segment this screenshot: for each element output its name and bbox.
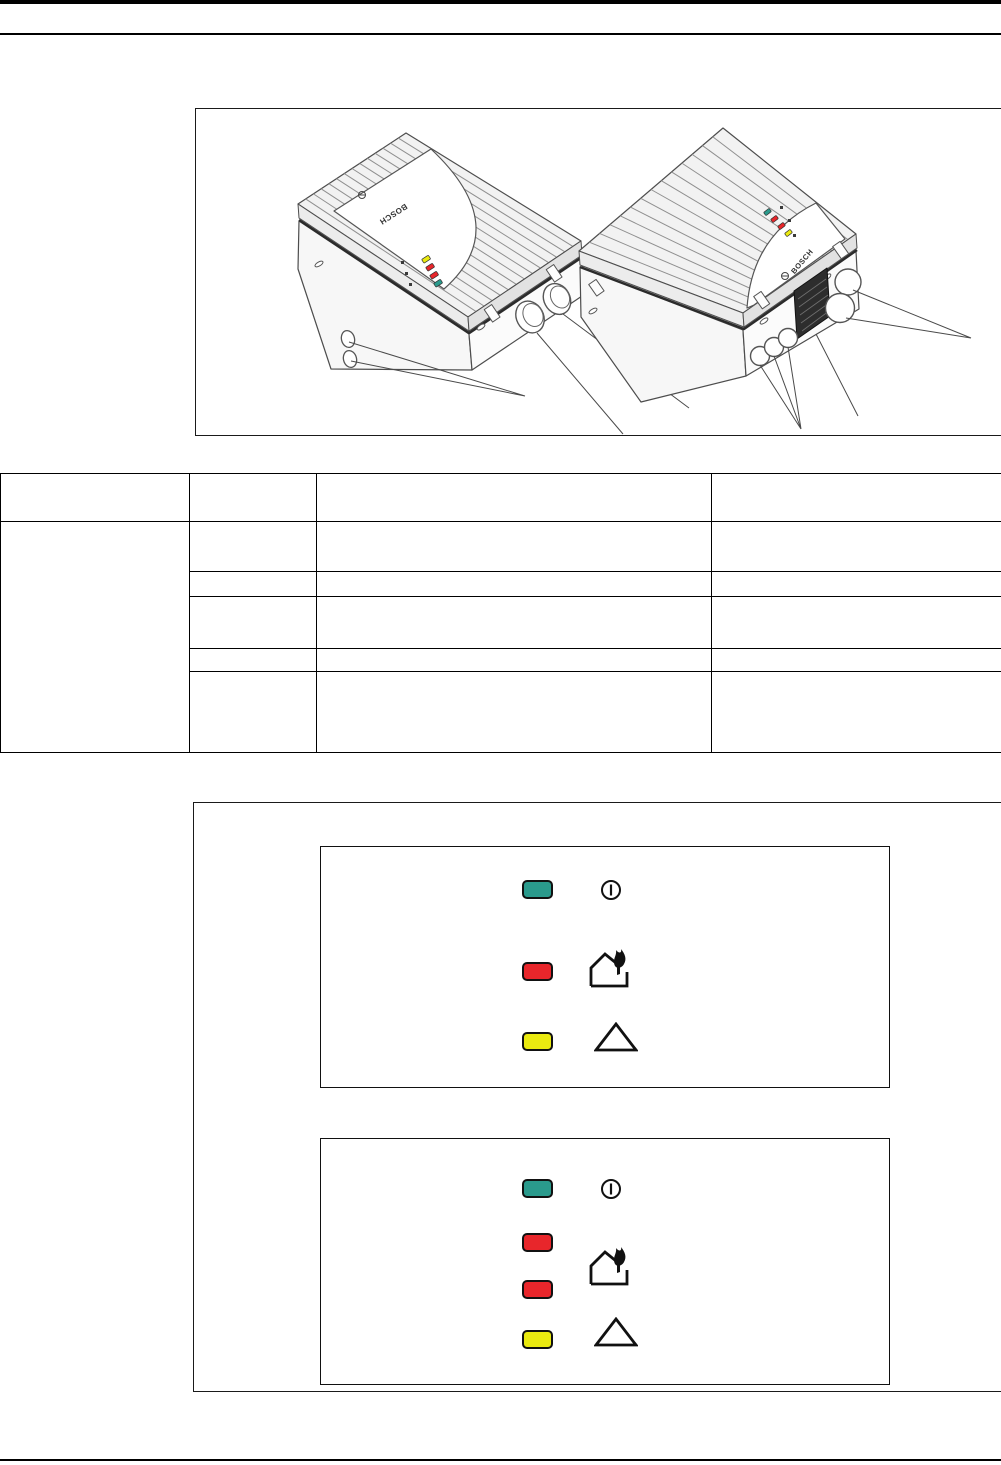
led-red <box>522 1280 553 1299</box>
parts-table <box>0 473 1001 753</box>
table-cell <box>712 474 1001 522</box>
table-cell <box>712 649 1001 672</box>
warning-triangle-icon <box>594 1022 638 1052</box>
table-cell <box>317 597 712 649</box>
led-legend-box-2 <box>320 1138 890 1385</box>
table-row <box>1 522 1001 572</box>
knockout-hole <box>779 329 798 348</box>
table-cell <box>712 597 1001 649</box>
led-legend-box-1 <box>320 846 890 1088</box>
table-cell <box>190 474 317 522</box>
table-cell <box>317 649 712 672</box>
table-cell <box>712 672 1001 753</box>
table-cell <box>317 474 712 522</box>
header-rule-thin <box>0 33 1001 35</box>
led-yellow <box>522 1330 553 1349</box>
house-fire-icon <box>586 1245 634 1287</box>
table-cell <box>712 522 1001 572</box>
table-cell <box>317 572 712 597</box>
table-header-row <box>1 474 1001 522</box>
power-icon <box>599 1177 623 1201</box>
device-right-illustration: BOSCH <box>579 128 971 429</box>
power-icon <box>599 878 623 902</box>
led-red <box>522 1233 553 1252</box>
table-cell-merged <box>1 522 190 753</box>
warning-triangle-icon <box>594 1317 638 1347</box>
device-figure: BOSCH <box>196 109 1001 435</box>
led-green <box>522 880 553 899</box>
table-cell <box>190 597 317 649</box>
table-cell <box>317 672 712 753</box>
header-rule-thick <box>0 0 1001 4</box>
led-red <box>522 962 553 981</box>
led-yellow <box>522 1032 553 1051</box>
manual-page: { "page": {"background": "#ffffff"}, "fi… <box>0 0 1001 1465</box>
footer-rule <box>0 1459 1001 1461</box>
table-cell <box>1 474 190 522</box>
table-cell <box>190 649 317 672</box>
large-opening <box>826 294 855 323</box>
table-cell <box>190 672 317 753</box>
table-cell <box>190 522 317 572</box>
led-legend-figure-frame <box>193 802 1001 1392</box>
device-figure-frame: BOSCH <box>195 108 1001 436</box>
table-cell <box>190 572 317 597</box>
large-opening <box>835 269 861 295</box>
led-green <box>522 1179 553 1198</box>
house-fire-icon <box>586 947 634 989</box>
table-cell <box>712 572 1001 597</box>
table-cell <box>317 522 712 572</box>
